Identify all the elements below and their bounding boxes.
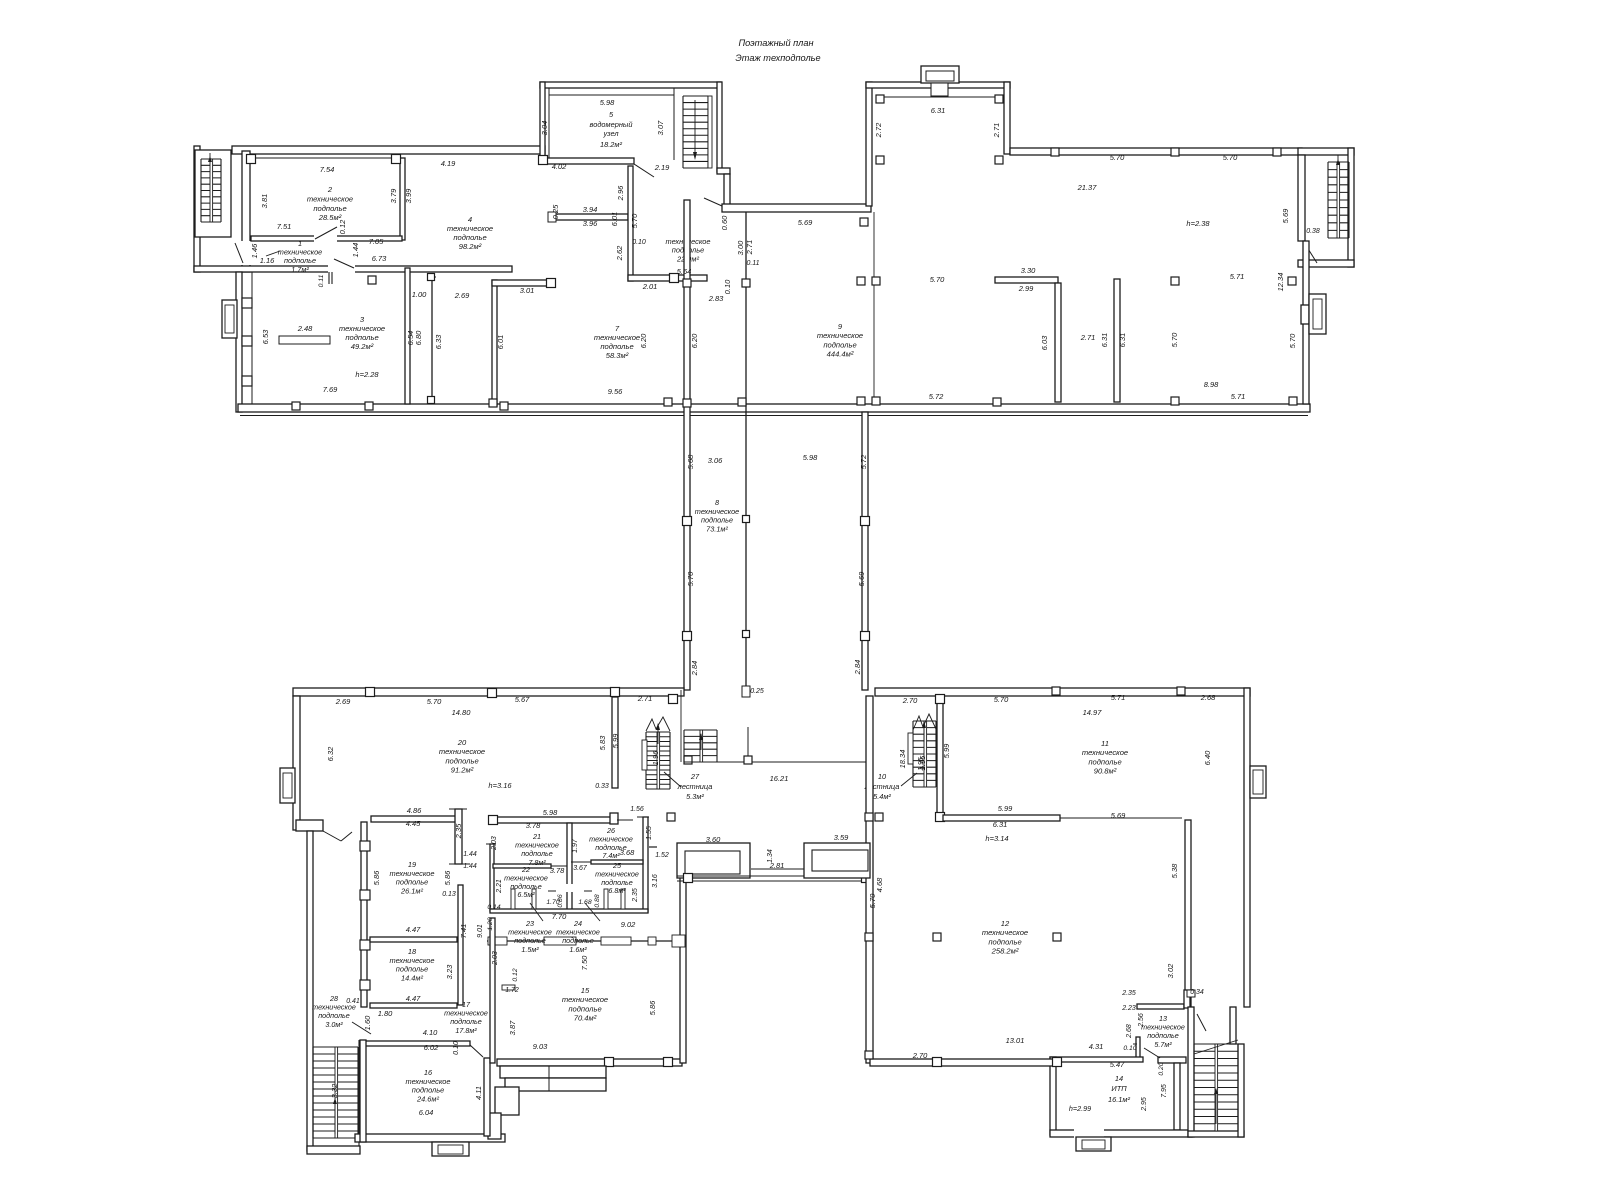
svg-text:18: 18 <box>408 947 417 956</box>
svg-text:h=2.38: h=2.38 <box>1186 219 1210 228</box>
svg-text:1.44: 1.44 <box>463 863 477 870</box>
svg-text:3.06: 3.06 <box>708 456 723 465</box>
svg-text:0.14: 0.14 <box>487 904 500 911</box>
svg-text:подполье: подполье <box>988 937 1021 946</box>
svg-text:4.45: 4.45 <box>406 819 421 828</box>
svg-text:5.98: 5.98 <box>600 98 615 107</box>
svg-text:Поэтажный план: Поэтажный план <box>738 38 813 48</box>
svg-text:6.32: 6.32 <box>326 746 335 761</box>
svg-text:2.69: 2.69 <box>454 291 470 300</box>
svg-text:6.53: 6.53 <box>261 329 270 344</box>
svg-text:1.46: 1.46 <box>250 243 259 258</box>
svg-text:0.12: 0.12 <box>512 968 519 981</box>
svg-text:6.40: 6.40 <box>1203 750 1212 765</box>
svg-text:подполье: подполье <box>345 333 378 342</box>
svg-text:2.84: 2.84 <box>853 660 862 676</box>
svg-text:2.72: 2.72 <box>874 122 883 138</box>
svg-text:0.38: 0.38 <box>1306 228 1320 235</box>
svg-text:5.98: 5.98 <box>803 453 818 462</box>
svg-text:5.64: 5.64 <box>677 267 692 276</box>
svg-text:1.95: 1.95 <box>918 757 925 771</box>
svg-text:2.68: 2.68 <box>1126 1024 1133 1039</box>
svg-text:2.03: 2.03 <box>492 951 499 966</box>
svg-text:7.70: 7.70 <box>552 912 567 921</box>
svg-text:5.70: 5.70 <box>1223 153 1238 162</box>
svg-text:20: 20 <box>457 738 467 747</box>
svg-text:3.0м²: 3.0м² <box>325 1020 343 1029</box>
svg-text:7.51: 7.51 <box>277 222 292 231</box>
svg-text:6.31: 6.31 <box>931 106 946 115</box>
svg-text:3.78: 3.78 <box>526 821 541 830</box>
svg-text:5.38: 5.38 <box>1170 863 1179 878</box>
svg-text:5.70: 5.70 <box>994 695 1009 704</box>
svg-text:15: 15 <box>581 986 590 995</box>
svg-text:6.31: 6.31 <box>993 820 1008 829</box>
svg-text:подполье: подполье <box>823 340 856 349</box>
svg-text:h=3.14: h=3.14 <box>985 834 1008 843</box>
svg-text:3.04: 3.04 <box>540 121 549 136</box>
svg-text:11: 11 <box>1101 739 1109 748</box>
svg-text:0.10: 0.10 <box>453 1041 460 1055</box>
svg-text:5.71: 5.71 <box>1111 693 1126 702</box>
svg-text:1.16: 1.16 <box>260 256 275 265</box>
svg-text:0.25: 0.25 <box>551 204 560 219</box>
svg-text:5.99: 5.99 <box>611 733 620 748</box>
svg-text:6.33: 6.33 <box>434 334 443 349</box>
svg-text:6.73: 6.73 <box>372 254 387 263</box>
svg-text:5.99: 5.99 <box>998 804 1013 813</box>
svg-text:73.1м²: 73.1м² <box>706 524 728 533</box>
svg-text:6.03: 6.03 <box>1040 335 1049 350</box>
svg-text:7.41: 7.41 <box>459 924 468 939</box>
svg-text:1.80: 1.80 <box>378 1009 393 1018</box>
svg-text:4.31: 4.31 <box>1089 1042 1104 1051</box>
svg-text:16.21: 16.21 <box>770 774 789 783</box>
svg-text:0.86: 0.86 <box>557 894 564 907</box>
svg-text:2.71: 2.71 <box>992 123 1001 139</box>
svg-text:0.11: 0.11 <box>746 260 759 267</box>
svg-text:1.52: 1.52 <box>655 852 669 859</box>
svg-text:3.68: 3.68 <box>620 848 635 857</box>
svg-text:3.67: 3.67 <box>573 865 588 872</box>
svg-text:5.70: 5.70 <box>930 275 945 284</box>
svg-text:5.47: 5.47 <box>1110 1060 1125 1069</box>
svg-text:1.68: 1.68 <box>578 899 591 906</box>
svg-text:5.70: 5.70 <box>1110 153 1125 162</box>
svg-text:1.7м²: 1.7м² <box>291 265 309 274</box>
svg-text:5.86: 5.86 <box>443 870 452 885</box>
svg-text:0.10: 0.10 <box>723 279 732 294</box>
svg-text:3.16: 3.16 <box>652 874 659 888</box>
svg-text:1.55: 1.55 <box>646 826 653 840</box>
svg-text:2.35: 2.35 <box>454 823 463 839</box>
svg-text:5.7м²: 5.7м² <box>1154 1040 1172 1049</box>
svg-text:техническое: техническое <box>405 1077 450 1086</box>
svg-text:5.86: 5.86 <box>372 870 381 885</box>
svg-text:6.01: 6.01 <box>496 335 505 350</box>
svg-text:0.20: 0.20 <box>1158 1062 1165 1075</box>
svg-text:6.80: 6.80 <box>414 330 423 345</box>
svg-text:3.32: 3.32 <box>330 1083 339 1098</box>
svg-text:0.11: 0.11 <box>318 274 325 287</box>
svg-text:3.23: 3.23 <box>445 964 454 979</box>
svg-text:7.05: 7.05 <box>369 237 384 246</box>
svg-text:14.4м²: 14.4м² <box>401 973 423 982</box>
svg-text:4.47: 4.47 <box>406 994 421 1003</box>
svg-text:1.5м²: 1.5м² <box>521 945 539 954</box>
svg-text:4.10: 4.10 <box>423 1028 438 1037</box>
svg-text:2.70: 2.70 <box>902 696 918 705</box>
svg-text:12.34: 12.34 <box>1276 273 1285 292</box>
svg-text:4.19: 4.19 <box>441 159 456 168</box>
svg-text:5.4м²: 5.4м² <box>873 792 891 801</box>
svg-text:4.11: 4.11 <box>474 1086 483 1100</box>
svg-text:3.59: 3.59 <box>834 833 849 842</box>
svg-text:2.03: 2.03 <box>491 836 498 851</box>
svg-text:5.70: 5.70 <box>1170 332 1179 347</box>
svg-text:4.68: 4.68 <box>875 877 884 892</box>
svg-text:9.02: 9.02 <box>621 920 636 929</box>
svg-text:2.95: 2.95 <box>1141 1097 1148 1112</box>
svg-text:Этаж техподполье: Этаж техподполье <box>735 53 820 63</box>
svg-text:техническое: техническое <box>594 333 640 342</box>
svg-text:9.01: 9.01 <box>477 924 484 938</box>
svg-text:подполье: подполье <box>600 342 633 351</box>
svg-text:2.71: 2.71 <box>745 240 754 256</box>
svg-text:24.6м²: 24.6м² <box>416 1094 439 1103</box>
svg-text:подполье: подполье <box>445 756 478 765</box>
svg-text:подполье: подполье <box>313 204 346 213</box>
svg-text:0.25: 0.25 <box>750 688 764 695</box>
svg-text:27: 27 <box>690 772 700 781</box>
svg-text:техническое: техническое <box>339 324 385 333</box>
svg-text:26.1м²: 26.1м² <box>400 886 423 895</box>
svg-text:2.69: 2.69 <box>335 697 351 706</box>
svg-text:5.70: 5.70 <box>630 213 639 228</box>
svg-text:5.68: 5.68 <box>686 454 695 469</box>
svg-text:10: 10 <box>878 772 887 781</box>
svg-text:h=2.28: h=2.28 <box>355 370 379 379</box>
svg-text:16: 16 <box>424 1068 433 1077</box>
svg-text:91.2м²: 91.2м² <box>451 766 474 775</box>
svg-text:3.02: 3.02 <box>1166 963 1175 978</box>
svg-text:h=2.99: h=2.99 <box>1069 1104 1091 1113</box>
svg-text:49.2м²: 49.2м² <box>351 342 374 351</box>
svg-text:0.41: 0.41 <box>346 998 360 1005</box>
svg-text:258.2м²: 258.2м² <box>991 947 1019 956</box>
svg-text:3.99: 3.99 <box>404 188 413 203</box>
svg-text:2.83: 2.83 <box>708 294 724 303</box>
svg-text:0.34: 0.34 <box>1190 989 1204 996</box>
svg-text:90.8м²: 90.8м² <box>1094 767 1117 776</box>
svg-text:подполье: подполье <box>701 516 733 525</box>
svg-text:5.71: 5.71 <box>1230 272 1245 281</box>
svg-text:3.60: 3.60 <box>706 835 721 844</box>
svg-text:12: 12 <box>1001 919 1010 928</box>
svg-text:13.01: 13.01 <box>1006 1036 1025 1045</box>
svg-text:2.01: 2.01 <box>642 282 658 291</box>
svg-text:подполье: подполье <box>396 878 428 887</box>
svg-text:1.56: 1.56 <box>630 806 644 813</box>
svg-text:14.80: 14.80 <box>452 708 472 717</box>
svg-text:0.12: 0.12 <box>338 219 347 234</box>
svg-text:6.04: 6.04 <box>419 1108 434 1117</box>
svg-text:5.70: 5.70 <box>1288 333 1297 348</box>
svg-text:0.10: 0.10 <box>1123 1045 1136 1052</box>
svg-text:техническое: техническое <box>447 224 493 233</box>
svg-text:1.97: 1.97 <box>572 838 579 853</box>
svg-text:5.71: 5.71 <box>1231 392 1246 401</box>
svg-text:444.4м²: 444.4м² <box>827 350 854 359</box>
svg-text:1.6м²: 1.6м² <box>569 945 587 954</box>
svg-text:9.03: 9.03 <box>533 1042 548 1051</box>
svg-text:58.3м²: 58.3м² <box>606 351 629 360</box>
svg-text:8.98: 8.98 <box>1204 380 1219 389</box>
svg-text:2.84: 2.84 <box>690 661 699 677</box>
svg-text:подполье: подполье <box>453 233 486 242</box>
svg-text:техническое: техническое <box>817 331 863 340</box>
svg-text:2.35: 2.35 <box>1121 990 1136 997</box>
svg-text:7.95: 7.95 <box>1161 1084 1168 1098</box>
svg-text:5.98: 5.98 <box>543 808 558 817</box>
svg-text:подполье: подполье <box>1088 757 1121 766</box>
svg-text:7.69: 7.69 <box>323 385 338 394</box>
svg-text:17.8м²: 17.8м² <box>455 1026 477 1035</box>
svg-text:6.01: 6.01 <box>610 212 619 227</box>
svg-text:3.30: 3.30 <box>1021 266 1036 275</box>
svg-text:1.44: 1.44 <box>463 851 477 858</box>
svg-text:2.48: 2.48 <box>297 324 313 333</box>
svg-text:4.02: 4.02 <box>552 162 567 171</box>
svg-text:2.71: 2.71 <box>1080 333 1096 342</box>
svg-text:техническое: техническое <box>1082 748 1128 757</box>
svg-text:21.37: 21.37 <box>1077 183 1098 192</box>
svg-text:1.20: 1.20 <box>487 917 494 930</box>
svg-text:3.79: 3.79 <box>389 188 398 203</box>
svg-text:3.96: 3.96 <box>583 219 598 228</box>
svg-text:0.33: 0.33 <box>595 783 609 790</box>
svg-text:1.96: 1.96 <box>651 750 660 765</box>
svg-text:5.70: 5.70 <box>427 697 442 706</box>
svg-text:h=3.16: h=3.16 <box>488 781 512 790</box>
svg-text:2.19: 2.19 <box>654 163 670 172</box>
svg-text:3.07: 3.07 <box>656 120 665 135</box>
svg-text:6.20: 6.20 <box>639 333 648 348</box>
svg-text:0.10: 0.10 <box>632 239 646 246</box>
svg-text:2.71: 2.71 <box>637 694 653 703</box>
svg-text:2.70: 2.70 <box>912 1051 928 1060</box>
svg-text:0.88: 0.88 <box>594 894 601 907</box>
svg-text:подполье: подполье <box>412 1086 444 1095</box>
svg-text:подполье: подполье <box>568 1004 601 1013</box>
svg-text:2.99: 2.99 <box>1018 284 1034 293</box>
svg-text:техническое: техническое <box>307 194 353 203</box>
svg-text:6.31: 6.31 <box>1100 333 1109 348</box>
svg-text:5.99: 5.99 <box>942 743 951 758</box>
svg-text:7.54: 7.54 <box>320 165 335 174</box>
svg-text:6.20: 6.20 <box>690 333 699 348</box>
svg-text:техническое: техническое <box>982 928 1028 937</box>
svg-text:1.72: 1.72 <box>505 987 519 994</box>
svg-text:98.2м²: 98.2м² <box>459 242 482 251</box>
svg-text:18.2м²: 18.2м² <box>600 140 622 149</box>
svg-text:1.60: 1.60 <box>363 1015 372 1030</box>
svg-text:14.97: 14.97 <box>1083 708 1103 717</box>
svg-text:техническое: техническое <box>389 869 434 878</box>
svg-text:5.69: 5.69 <box>798 218 813 227</box>
svg-text:3.81: 3.81 <box>260 194 269 209</box>
svg-text:2.23: 2.23 <box>1121 1005 1136 1012</box>
svg-text:9.56: 9.56 <box>608 387 623 396</box>
svg-text:5.69: 5.69 <box>1111 811 1126 820</box>
svg-text:5.83: 5.83 <box>598 735 607 750</box>
svg-text:техническое: техническое <box>389 956 434 965</box>
svg-text:6.02: 6.02 <box>424 1043 439 1052</box>
svg-text:5.70: 5.70 <box>868 893 877 908</box>
svg-text:6.31: 6.31 <box>1118 333 1127 348</box>
svg-text:5.3м²: 5.3м² <box>686 792 704 801</box>
svg-text:0.60: 0.60 <box>720 215 729 230</box>
svg-text:3.78: 3.78 <box>550 866 565 875</box>
svg-text:техническое: техническое <box>439 747 485 756</box>
svg-text:3.87: 3.87 <box>508 1020 517 1035</box>
svg-text:3.94: 3.94 <box>583 205 598 214</box>
svg-text:1.44: 1.44 <box>351 243 360 258</box>
svg-text:14: 14 <box>1115 1074 1123 1083</box>
svg-text:18.34: 18.34 <box>898 750 907 769</box>
svg-text:70.4м²: 70.4м² <box>574 1014 597 1023</box>
svg-text:7.8м²: 7.8м² <box>528 858 546 867</box>
svg-text:5.72: 5.72 <box>929 392 944 401</box>
svg-text:0.13: 0.13 <box>442 891 456 898</box>
svg-text:3.00: 3.00 <box>736 240 745 255</box>
svg-text:5.69: 5.69 <box>857 571 866 586</box>
svg-text:4: 4 <box>468 215 472 224</box>
svg-text:1.00: 1.00 <box>412 290 427 299</box>
svg-text:ИТП: ИТП <box>1111 1084 1127 1093</box>
svg-text:7.50: 7.50 <box>580 955 589 970</box>
svg-text:2.35: 2.35 <box>632 888 639 903</box>
svg-text:узел: узел <box>602 129 619 138</box>
svg-text:3.01: 3.01 <box>520 286 535 295</box>
svg-text:2.56: 2.56 <box>1138 1013 1145 1028</box>
svg-text:5.69: 5.69 <box>1281 208 1290 223</box>
svg-text:16.1м²: 16.1м² <box>1108 1095 1130 1104</box>
svg-text:6.5м²: 6.5м² <box>517 890 535 899</box>
svg-text:лестница: лестница <box>677 782 713 791</box>
svg-text:5.86: 5.86 <box>648 1000 657 1015</box>
svg-text:5.70: 5.70 <box>686 571 695 586</box>
svg-text:4.47: 4.47 <box>406 925 421 934</box>
svg-text:5.72: 5.72 <box>859 454 868 469</box>
svg-text:2: 2 <box>327 185 333 194</box>
svg-text:2.62: 2.62 <box>615 245 624 261</box>
svg-text:техническое: техническое <box>562 995 608 1004</box>
svg-text:подполье: подполье <box>396 965 428 974</box>
svg-text:19: 19 <box>408 860 416 869</box>
svg-text:водомерный: водомерный <box>590 120 633 129</box>
svg-text:7.4м²: 7.4м² <box>602 851 620 860</box>
svg-text:техническое: техническое <box>695 507 740 516</box>
svg-text:6.8м²: 6.8м² <box>608 886 626 895</box>
svg-text:2.21: 2.21 <box>496 879 503 894</box>
svg-text:2.96: 2.96 <box>616 185 625 201</box>
svg-text:2.68: 2.68 <box>1200 693 1216 702</box>
svg-text:5.67: 5.67 <box>515 695 530 704</box>
svg-text:4.86: 4.86 <box>407 806 422 815</box>
